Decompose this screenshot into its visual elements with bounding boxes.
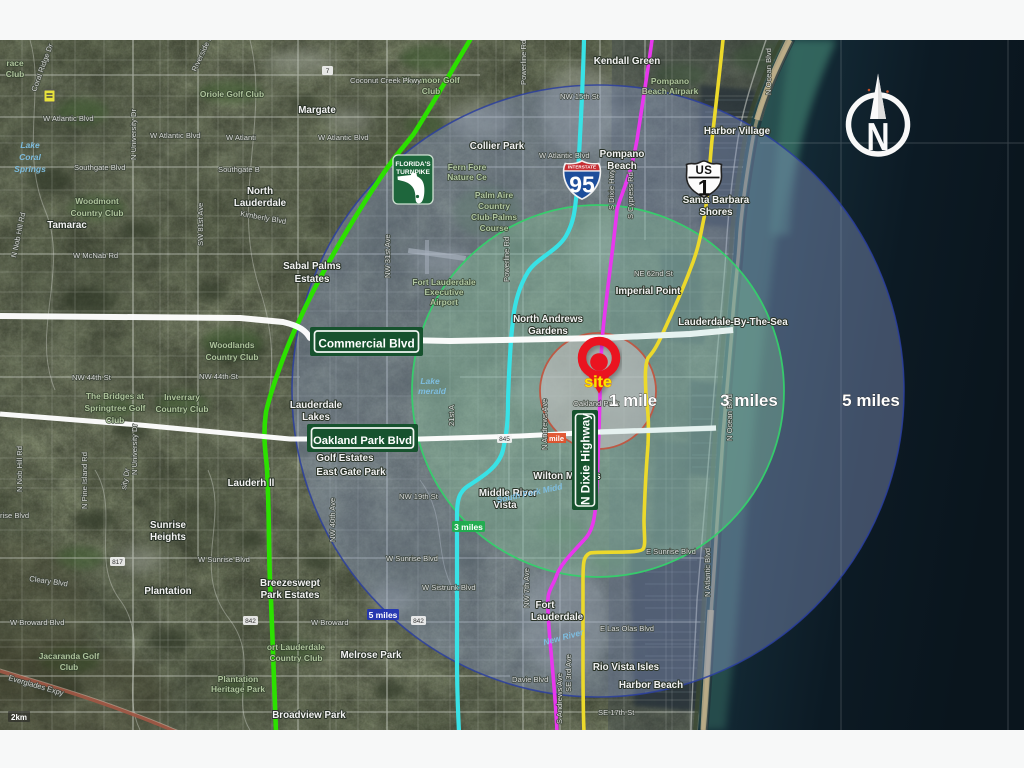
svg-text:Lauderdale: Lauderdale bbox=[290, 400, 343, 411]
svg-text:W Sistrunk Blvd: W Sistrunk Blvd bbox=[422, 583, 476, 592]
svg-text:Lake: Lake bbox=[420, 376, 440, 386]
svg-text:N Andrews Ave: N Andrews Ave bbox=[540, 399, 549, 450]
svg-text:Lake: Lake bbox=[20, 140, 40, 150]
svg-text:Club: Club bbox=[106, 415, 125, 425]
svg-text:1 mile: 1 mile bbox=[609, 391, 657, 410]
svg-text:N Dixie Highway: N Dixie Highway bbox=[579, 413, 593, 505]
svg-text:Executive: Executive bbox=[424, 287, 463, 297]
svg-text:N Pine Island Rd: N Pine Island Rd bbox=[80, 452, 89, 509]
svg-text:Park Estates: Park Estates bbox=[261, 590, 320, 601]
svg-text:Plantation: Plantation bbox=[218, 674, 258, 684]
svg-text:Broadview Park: Broadview Park bbox=[272, 710, 346, 721]
svg-text:Rio Vista Isles: Rio Vista Isles bbox=[593, 662, 660, 673]
svg-text:Palm Aire: Palm Aire bbox=[475, 190, 514, 200]
svg-text:Course: Course bbox=[480, 223, 509, 233]
svg-text:5 miles: 5 miles bbox=[842, 391, 900, 410]
svg-text:Coral: Coral bbox=[19, 152, 41, 162]
svg-text:Heights: Heights bbox=[150, 532, 186, 543]
svg-text:Pompano: Pompano bbox=[651, 76, 689, 86]
svg-text:Pompano: Pompano bbox=[600, 149, 645, 160]
svg-text:7: 7 bbox=[326, 68, 330, 75]
svg-text:N University Dr: N University Dr bbox=[129, 108, 138, 160]
svg-text:Harbor Village: Harbor Village bbox=[704, 126, 771, 137]
svg-text:Country Club: Country Club bbox=[155, 404, 208, 414]
svg-text:N Ocean Blvd: N Ocean Blvd bbox=[764, 48, 773, 95]
svg-text:W Atlantic Blvd: W Atlantic Blvd bbox=[318, 133, 369, 142]
svg-text:Oriole Golf Club: Oriole Golf Club bbox=[200, 89, 264, 99]
svg-text:W Sunrise Blvd: W Sunrise Blvd bbox=[198, 555, 250, 564]
svg-text:Country Club: Country Club bbox=[70, 208, 123, 218]
svg-text:N: N bbox=[866, 115, 889, 159]
svg-text:2km: 2km bbox=[11, 713, 27, 722]
svg-text:Commercial Blvd: Commercial Blvd bbox=[318, 337, 414, 351]
svg-text:Lakes: Lakes bbox=[302, 412, 330, 423]
svg-text:North Andrews: North Andrews bbox=[513, 314, 583, 325]
svg-text:Shores: Shores bbox=[699, 207, 733, 218]
svg-text:3 miles: 3 miles bbox=[454, 522, 483, 532]
svg-text:Lauderh ll: Lauderh ll bbox=[228, 478, 275, 489]
svg-text:Inverrary: Inverrary bbox=[164, 392, 200, 402]
svg-text:Country: Country bbox=[478, 201, 510, 211]
svg-text:W Atlanti: W Atlanti bbox=[226, 133, 256, 142]
svg-text:NW 15th St: NW 15th St bbox=[560, 92, 600, 101]
svg-text:Club: Club bbox=[6, 69, 25, 79]
svg-text:817: 817 bbox=[112, 559, 123, 566]
svg-text:Club-Palms: Club-Palms bbox=[471, 212, 517, 222]
svg-text:Beach Airpark: Beach Airpark bbox=[642, 86, 699, 96]
svg-text:Country Club: Country Club bbox=[269, 653, 322, 663]
svg-text:W Atlantic Blvd: W Atlantic Blvd bbox=[539, 151, 590, 160]
svg-text:W Broward Blvd: W Broward Blvd bbox=[10, 618, 64, 627]
svg-text:Estates: Estates bbox=[295, 274, 330, 285]
svg-text:FLORIDA'S: FLORIDA'S bbox=[395, 161, 431, 168]
svg-text:S Cypress Rd: S Cypress Rd bbox=[626, 172, 635, 219]
svg-text:Davie Blvd: Davie Blvd bbox=[512, 675, 548, 684]
svg-text:NW 19th St: NW 19th St bbox=[399, 492, 439, 501]
svg-text:Lauderdale-By-The-Sea: Lauderdale-By-The-Sea bbox=[678, 317, 788, 328]
svg-text:Woodlands: Woodlands bbox=[210, 340, 255, 350]
svg-text:Powerline Rd: Powerline Rd bbox=[519, 40, 528, 85]
svg-text:NW 40th Ave: NW 40th Ave bbox=[328, 498, 337, 542]
svg-text:NE 62nd St: NE 62nd St bbox=[634, 269, 674, 278]
svg-text:Collier Park: Collier Park bbox=[470, 141, 525, 152]
svg-text:842: 842 bbox=[413, 618, 424, 625]
svg-text:Southgate B: Southgate B bbox=[218, 165, 260, 174]
svg-text:Gardens: Gardens bbox=[528, 326, 568, 337]
svg-text:SE 17th St: SE 17th St bbox=[598, 708, 635, 717]
svg-text:Club: Club bbox=[60, 662, 79, 672]
svg-text:S Dixie Hwy: S Dixie Hwy bbox=[607, 169, 616, 210]
svg-text:Margate: Margate bbox=[298, 105, 336, 116]
svg-text:95: 95 bbox=[569, 172, 595, 198]
svg-text:SW 81st Ave: SW 81st Ave bbox=[196, 203, 205, 246]
svg-text:NW 31st Ave: NW 31st Ave bbox=[383, 234, 392, 278]
svg-text:Southgate Blvd: Southgate Blvd bbox=[74, 163, 126, 172]
svg-text:NW 44th St: NW 44th St bbox=[199, 372, 239, 381]
svg-text:N University Dr: N University Dr bbox=[130, 423, 139, 475]
svg-text:East Gate Park: East Gate Park bbox=[316, 467, 386, 478]
svg-text:W Atlantic Blvd: W Atlantic Blvd bbox=[43, 114, 94, 123]
svg-text:W Sunrise Blvd: W Sunrise Blvd bbox=[386, 554, 438, 563]
svg-text:Breezeswept: Breezeswept bbox=[260, 578, 321, 589]
svg-text:842: 842 bbox=[245, 618, 256, 625]
svg-text:race: race bbox=[6, 58, 24, 68]
svg-text:mile: mile bbox=[549, 434, 564, 443]
svg-text:Imperial Point: Imperial Point bbox=[616, 286, 682, 297]
svg-text:Golf Estates: Golf Estates bbox=[316, 453, 374, 464]
svg-text:Lauderdale: Lauderdale bbox=[234, 198, 287, 209]
svg-text:Country Club: Country Club bbox=[205, 352, 258, 362]
svg-text:N Nob Hill Rd: N Nob Hill Rd bbox=[15, 446, 24, 492]
svg-text:Springs: Springs bbox=[14, 164, 46, 174]
svg-text:W McNab Rd: W McNab Rd bbox=[73, 251, 118, 260]
svg-text:Plantation: Plantation bbox=[144, 586, 191, 597]
svg-text:Woodmont: Woodmont bbox=[75, 196, 119, 206]
svg-text:Tamarac: Tamarac bbox=[47, 220, 87, 231]
svg-text:21st A: 21st A bbox=[447, 404, 456, 426]
svg-text:E Las Olas Blvd: E Las Olas Blvd bbox=[600, 624, 654, 633]
svg-text:Melrose Park: Melrose Park bbox=[341, 650, 403, 661]
svg-text:N Atlantic Blvd: N Atlantic Blvd bbox=[703, 548, 712, 597]
svg-text:site: site bbox=[584, 374, 612, 391]
svg-text:1: 1 bbox=[698, 176, 710, 201]
svg-text:5 miles: 5 miles bbox=[369, 610, 398, 620]
svg-text:845: 845 bbox=[499, 436, 510, 443]
svg-text:Fern Fore: Fern Fore bbox=[448, 162, 487, 172]
svg-text:Kendall Green: Kendall Green bbox=[594, 56, 660, 67]
svg-text:NW 7th Ave: NW 7th Ave bbox=[522, 568, 531, 608]
svg-text:Fort Lauderdale: Fort Lauderdale bbox=[412, 277, 476, 287]
svg-text:SE 3rd Ave: SE 3rd Ave bbox=[564, 654, 573, 692]
svg-text:Fort: Fort bbox=[535, 600, 555, 611]
svg-text:Santa Barbara: Santa Barbara bbox=[683, 195, 750, 206]
svg-text:INTERSTATE: INTERSTATE bbox=[568, 165, 596, 170]
svg-text:merald: merald bbox=[418, 386, 447, 396]
svg-text:Sabal Palms: Sabal Palms bbox=[283, 261, 341, 272]
svg-text:Jacaranda Golf: Jacaranda Golf bbox=[39, 651, 100, 661]
svg-text:3 miles: 3 miles bbox=[720, 391, 778, 410]
svg-text:Heritage Park: Heritage Park bbox=[211, 684, 265, 694]
svg-text:Powerline Rd: Powerline Rd bbox=[502, 237, 511, 282]
svg-text:Sunrise: Sunrise bbox=[150, 520, 186, 531]
svg-text:North: North bbox=[247, 186, 273, 197]
svg-text:W Broward: W Broward bbox=[311, 618, 349, 627]
svg-text:ort Lauderdale: ort Lauderdale bbox=[267, 642, 326, 652]
svg-text:Club: Club bbox=[422, 86, 441, 96]
svg-text:Lauderdale: Lauderdale bbox=[531, 612, 584, 623]
svg-text:Nature Ce: Nature Ce bbox=[447, 172, 487, 182]
svg-text:The Bridges at: The Bridges at bbox=[86, 391, 144, 401]
svg-text:E Sunrise Blvd: E Sunrise Blvd bbox=[646, 547, 696, 556]
svg-text:rise Blvd: rise Blvd bbox=[0, 511, 29, 520]
svg-text:Oakland Park Blvd: Oakland Park Blvd bbox=[313, 435, 412, 447]
svg-text:W Atlantic Blvd: W Atlantic Blvd bbox=[150, 131, 201, 140]
svg-text:Airport: Airport bbox=[430, 297, 458, 307]
svg-text:Springtree Golf: Springtree Golf bbox=[85, 403, 146, 413]
svg-text:S Andrews Ave: S Andrews Ave bbox=[555, 673, 564, 724]
svg-text:Harbor Beach: Harbor Beach bbox=[619, 680, 683, 691]
svg-text:NW 44th St: NW 44th St bbox=[72, 373, 112, 382]
svg-text:Coconut Creek Pkwy: Coconut Creek Pkwy bbox=[350, 76, 421, 85]
